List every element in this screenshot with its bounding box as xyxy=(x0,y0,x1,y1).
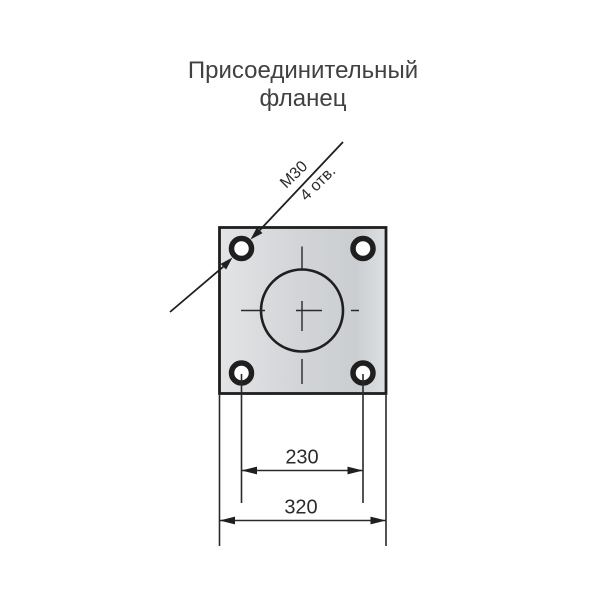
drawing-title-line2: фланец xyxy=(260,85,347,112)
dim-bolt-spacing-arrow-left-icon xyxy=(242,467,258,475)
leader-line-lower xyxy=(170,267,223,312)
drawing-title-line1: Присоединительный xyxy=(188,57,418,84)
leader-line-upper xyxy=(260,142,343,230)
bolt-hole-top-left xyxy=(232,239,252,259)
dim-bolt-spacing-arrow-right-icon xyxy=(348,467,364,475)
dim-plate-size-arrow-left-icon xyxy=(220,517,236,525)
dim-bolt-spacing-value: 230 xyxy=(285,447,318,469)
dim-plate-size-value: 320 xyxy=(284,497,317,519)
bolt-hole-top-right xyxy=(353,239,373,259)
flange-technical-drawing: Присоединительный фланец М30 4 отв. 230 xyxy=(0,0,600,600)
drawing-canvas: Присоединительный фланец М30 4 отв. 230 xyxy=(0,0,600,600)
dim-plate-size-arrow-right-icon xyxy=(371,517,387,525)
